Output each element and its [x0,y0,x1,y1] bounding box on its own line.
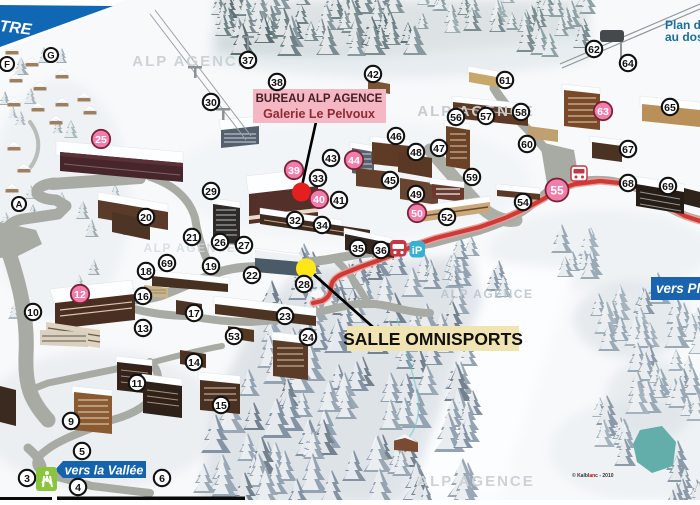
svg-text:ALP AGENCE: ALP AGENCE [440,287,533,301]
svg-text:62: 62 [588,44,600,56]
svg-text:10: 10 [27,307,39,319]
svg-text:BUREAU ALP AGENCE: BUREAU ALP AGENCE [256,93,383,105]
svg-text:69: 69 [161,258,173,270]
svg-text:16: 16 [137,291,149,303]
svg-text:64: 64 [622,58,634,70]
svg-text:29: 29 [205,186,217,198]
svg-text:A: A [16,199,23,210]
svg-text:25: 25 [95,134,107,146]
svg-text:9: 9 [68,416,74,428]
svg-text:34: 34 [316,220,328,232]
svg-text:22: 22 [246,270,258,282]
svg-text:17: 17 [188,308,200,320]
svg-text:68: 68 [622,178,634,190]
svg-text:4: 4 [75,482,81,494]
svg-text:au dos -: au dos - [665,30,700,44]
svg-text:36: 36 [375,245,387,257]
svg-text:32: 32 [289,215,301,227]
svg-text:50: 50 [411,208,423,220]
svg-text:65: 65 [664,102,676,114]
svg-text:14: 14 [188,357,200,369]
svg-text:67: 67 [622,144,634,156]
svg-text:41: 41 [333,195,345,207]
svg-text:iP: iP [412,245,422,257]
svg-text:49: 49 [410,189,422,201]
svg-text:23: 23 [279,311,291,323]
svg-text:SALLE OMNISPORTS: SALLE OMNISPORTS [343,329,523,349]
svg-text:12: 12 [74,289,86,301]
svg-text:3: 3 [24,473,30,485]
svg-text:42: 42 [367,69,379,81]
svg-text:60: 60 [521,139,533,151]
svg-text:39: 39 [288,165,300,177]
svg-text:52: 52 [441,212,453,224]
svg-text:47: 47 [433,143,445,155]
svg-text:55: 55 [550,183,564,197]
svg-text:13: 13 [137,323,149,335]
svg-text:19: 19 [205,261,217,273]
svg-text:54: 54 [517,197,529,209]
svg-text:58: 58 [515,107,527,119]
svg-text:59: 59 [466,172,478,184]
svg-text:ALP AGENCE: ALP AGENCE [417,473,535,490]
svg-text:43: 43 [325,153,337,165]
svg-text:21: 21 [186,232,198,244]
svg-text:27: 27 [238,240,250,252]
svg-text:63: 63 [597,106,609,118]
svg-text:53: 53 [228,331,240,343]
svg-text:46: 46 [390,131,402,143]
svg-text:56: 56 [450,112,462,124]
svg-text:28: 28 [298,279,310,291]
svg-text:18: 18 [140,266,152,278]
svg-text:6: 6 [159,473,165,485]
svg-text:vers Pla: vers Pla [656,281,700,296]
svg-text:48: 48 [410,147,422,159]
svg-text:24: 24 [302,332,314,344]
svg-text:57: 57 [480,111,492,123]
svg-text:G: G [47,50,54,61]
svg-text:40: 40 [313,194,325,206]
svg-text:33: 33 [312,173,324,185]
svg-text:ALP AGENCE: ALP AGENCE [132,53,250,70]
svg-text:11: 11 [131,378,142,390]
svg-text:© Kalblanc - 2010: © Kalblanc - 2010 [572,472,614,479]
svg-text:26: 26 [214,237,226,249]
svg-text:20: 20 [140,212,152,224]
svg-text:45: 45 [384,175,396,187]
svg-text:44: 44 [348,155,360,167]
svg-text:Galerie Le Pelvoux: Galerie Le Pelvoux [263,107,375,121]
svg-text:30: 30 [205,97,217,109]
svg-text:61: 61 [499,75,511,87]
svg-text:37: 37 [242,55,254,67]
svg-text:38: 38 [271,77,283,89]
svg-text:vers la Vallée: vers la Vallée [65,464,144,478]
svg-text:35: 35 [352,243,364,255]
svg-text:F: F [4,59,10,70]
svg-text:15: 15 [215,400,227,412]
svg-text:69: 69 [662,181,674,193]
svg-text:5: 5 [79,446,85,458]
